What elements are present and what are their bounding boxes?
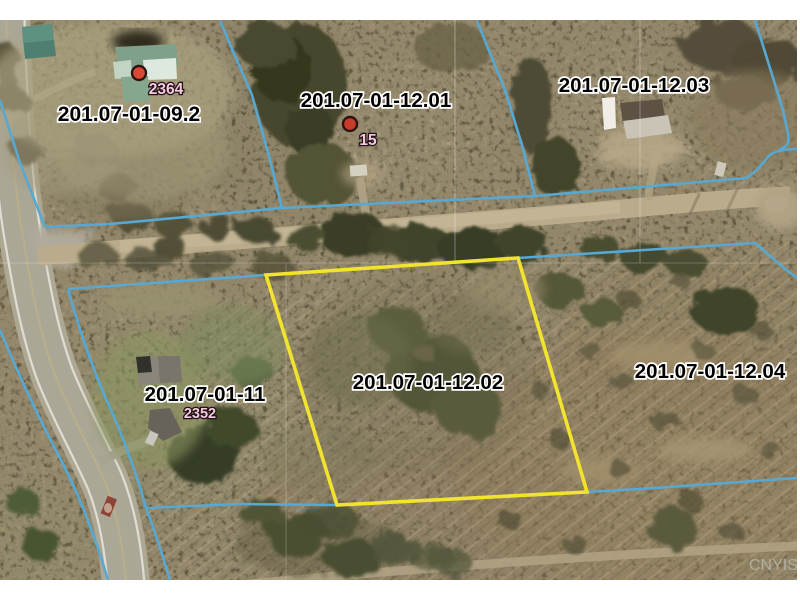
svg-text:CNYIS: CNYIS [749,557,798,574]
svg-text:201.07-01-12.03: 201.07-01-12.03 [559,74,709,97]
svg-text:15: 15 [359,132,377,149]
svg-text:201.07-01-12.02: 201.07-01-12.02 [353,371,503,394]
svg-text:201.07-01-09.2: 201.07-01-09.2 [58,103,200,126]
svg-text:201.07-01-12.01: 201.07-01-12.01 [301,89,451,112]
svg-text:201.07-01-11: 201.07-01-11 [145,383,266,406]
svg-text:2352: 2352 [184,406,216,422]
svg-text:201.07-01-12.04: 201.07-01-12.04 [635,360,786,383]
svg-text:2364: 2364 [149,81,184,98]
